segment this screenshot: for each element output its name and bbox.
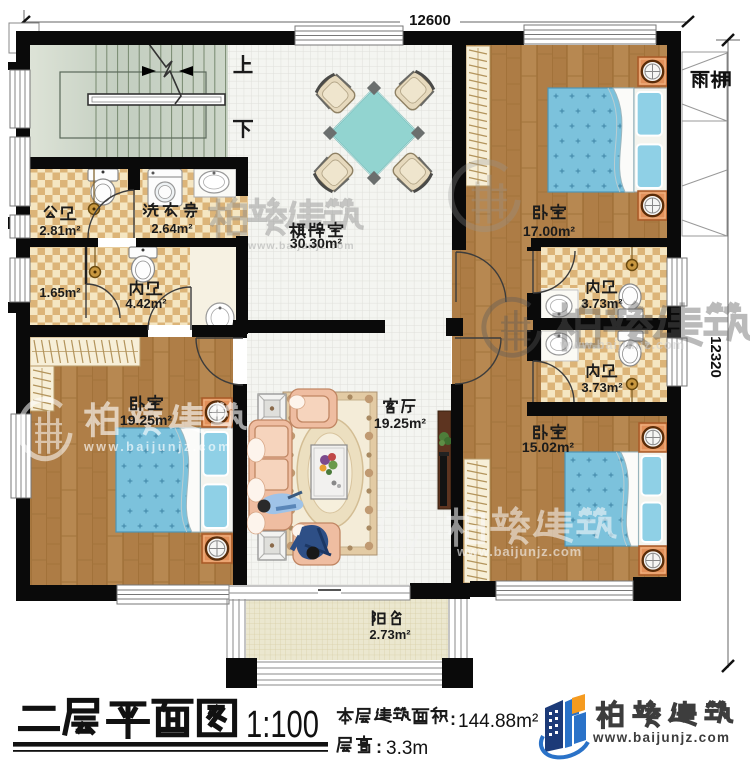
- svg-text:3.73m²: 3.73m²: [581, 296, 623, 311]
- svg-text:www.baijunjz.com: www.baijunjz.com: [83, 440, 232, 454]
- svg-text:3.3m: 3.3m: [386, 738, 428, 759]
- svg-text:www.baijunjz.com: www.baijunjz.com: [559, 337, 685, 352]
- svg-text::: :: [376, 737, 382, 757]
- svg-text:30.30m²: 30.30m²: [290, 235, 342, 251]
- svg-text:1:100: 1:100: [246, 704, 319, 746]
- svg-text:2.64m²: 2.64m²: [151, 221, 193, 236]
- svg-text:4.42m²: 4.42m²: [125, 296, 167, 311]
- svg-text:www.baijunjz.com: www.baijunjz.com: [592, 730, 730, 745]
- svg-text:17.00m²: 17.00m²: [523, 223, 575, 239]
- svg-text:19.25m²: 19.25m²: [120, 412, 172, 428]
- svg-text:144.88m²: 144.88m²: [458, 711, 538, 732]
- svg-text::: :: [450, 709, 456, 729]
- svg-text:2.73m²: 2.73m²: [369, 627, 411, 642]
- svg-text:www.baijunjz.com: www.baijunjz.com: [456, 544, 582, 559]
- svg-text:12320: 12320: [707, 336, 724, 378]
- svg-text:12600: 12600: [409, 12, 451, 29]
- svg-text:15.02m²: 15.02m²: [522, 439, 574, 455]
- svg-text:19.25m²: 19.25m²: [374, 415, 426, 431]
- svg-text:2.81m²: 2.81m²: [39, 223, 81, 238]
- svg-text:1.65m²: 1.65m²: [39, 285, 81, 300]
- svg-text:3.73m²: 3.73m²: [581, 380, 623, 395]
